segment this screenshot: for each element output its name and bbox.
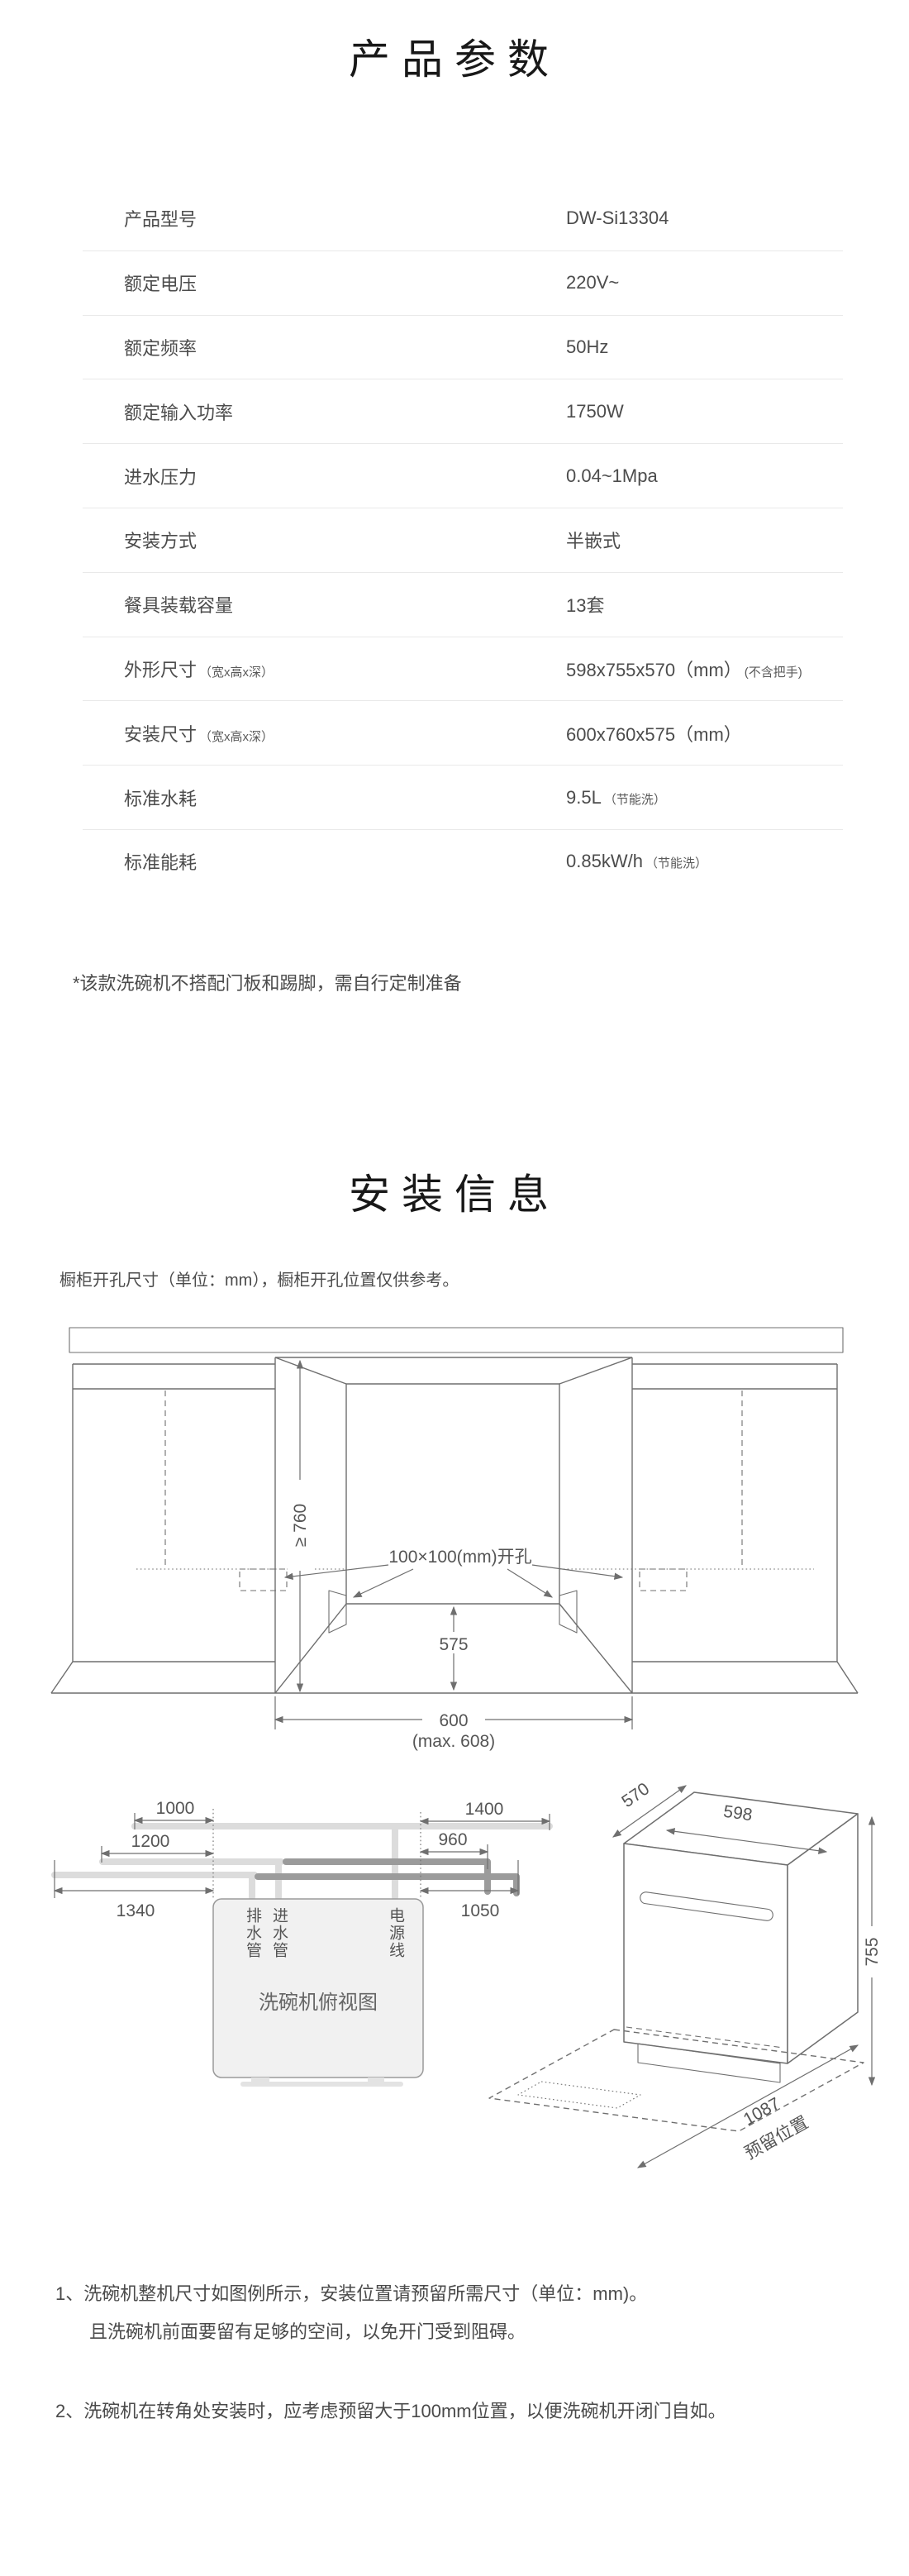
spec-label: 标准水耗: [124, 785, 197, 811]
topview-title: 洗碗机俯视图: [259, 1992, 378, 2014]
spec-value: 600x760x575（mm）: [566, 720, 742, 747]
hose-and-machine-diagram: 1000 1200 1340 1400 960 1050 洗碗机俯视图: [33, 1761, 884, 2224]
spec-row-energy-use: 标准能耗 0.85kW/h（节能洗）: [83, 830, 843, 894]
label-power-cord: 电源线: [385, 1907, 405, 1959]
product-detail-page: { "specs": { "title": "产品参数", "rows": [ …: [0, 0, 909, 2576]
spec-row-outer-size: 外形尺寸（宽x高x深） 598x755x570（mm）(不含把手): [83, 637, 843, 702]
dim-height-label: ≥ 760: [291, 1504, 310, 1547]
spec-label: 额定电压: [124, 270, 197, 296]
dim-height: ≥ 760: [288, 1361, 312, 1691]
dim-drain-left: 1340: [117, 1901, 155, 1920]
spec-label: 额定输入功率: [124, 398, 233, 425]
spec-value: 半嵌式: [566, 527, 621, 553]
spec-value: 598x755x570（mm）: [566, 656, 742, 682]
spec-label: 餐具装载容量: [124, 591, 233, 618]
spec-label: 安装方式: [124, 527, 197, 553]
spec-value: 50Hz: [566, 336, 608, 358]
spec-value-note: （节能洗）: [645, 854, 707, 871]
dim-width-max-label: (max. 608): [412, 1732, 495, 1751]
hoses: [55, 1826, 550, 1897]
edge-projection-lines: [213, 1809, 421, 1899]
dim-power-right: 1400: [465, 1800, 504, 1819]
spec-label: 产品型号: [124, 205, 197, 231]
spec-value-note: （节能洗）: [604, 790, 666, 808]
dim-inlet-left: 1200: [131, 1832, 170, 1851]
dim-depth-label: 575: [439, 1635, 468, 1654]
dim-drain-right: 1050: [461, 1901, 500, 1920]
spec-row-frequency: 额定频率 50Hz: [83, 316, 843, 380]
spec-row-voltage: 额定电压 220V~: [83, 251, 843, 316]
spec-row-install-size: 安装尺寸（宽x高x深） 600x760x575（mm）: [83, 701, 843, 766]
dim-inlet-right: 960: [438, 1830, 467, 1849]
label-drain-hose: 排水管: [242, 1907, 262, 1959]
spec-row-capacity: 餐具装载容量 13套: [83, 573, 843, 637]
spec-value: DW-Si13304: [566, 208, 669, 229]
label-inlet-hose: 进水管: [269, 1907, 288, 1959]
dim-hole: 100×100(mm)开孔: [285, 1548, 622, 1597]
dim-clearance: 1087: [740, 2094, 783, 2130]
spec-label: 额定频率: [124, 334, 197, 360]
dim-machine-width: 598: [722, 1802, 754, 1825]
spec-value: 1750W: [566, 401, 624, 422]
specs-title: 产品参数: [0, 26, 909, 86]
note-1-num: 1、: [55, 2283, 83, 2304]
dim-depth: 575: [432, 1607, 475, 1690]
spec-row-water-use: 标准水耗 9.5L（节能洗）: [83, 766, 843, 830]
spec-label: 进水压力: [124, 463, 197, 489]
dim-hole-label: 100×100(mm)开孔: [388, 1548, 531, 1567]
right-cabinet: [559, 1364, 858, 1693]
dim-machine-height: 755: [863, 1937, 882, 1966]
spec-value: 0.85kW/h: [566, 851, 643, 872]
spec-label: 安装尺寸: [124, 720, 197, 747]
spec-value: 9.5L: [566, 787, 602, 809]
dishwasher-isometric: [624, 1792, 858, 2082]
install-notes: 1、洗碗机整机尺寸如图例所示，安装位置请预留所需尺寸（单位：mm)。 且洗碗机前…: [55, 2275, 873, 2431]
spec-row-model: 产品型号 DW-Si13304: [83, 187, 843, 251]
dim-power-left: 1000: [156, 1799, 195, 1818]
countertop: [69, 1328, 843, 1352]
note-2-line-1: 2、洗碗机在转角处安装时，应考虑预留大于100mm位置，以便洗碗机开闭门自如。: [55, 2392, 873, 2431]
note-2-num: 2、: [55, 2401, 83, 2421]
install-title: 安装信息: [0, 1162, 909, 1221]
note-1-line-1: 1、洗碗机整机尺寸如图例所示，安装位置请预留所需尺寸（单位：mm)。: [55, 2275, 873, 2313]
spec-row-install-type: 安装方式 半嵌式: [83, 508, 843, 573]
spec-footnote: *该款洗碗机不搭配门板和踢脚，需自行定制准备: [73, 969, 462, 995]
spec-row-power: 额定输入功率 1750W: [83, 379, 843, 444]
install-subtitle: 橱柜开孔尺寸（单位：mm），橱柜开孔位置仅供参考。: [59, 1267, 459, 1290]
spec-label-note: （宽x高x深）: [199, 727, 274, 745]
spec-label-note: （宽x高x深）: [199, 663, 274, 680]
note-1-line-2: 且洗碗机前面要留有足够的空间，以免开门受到阻碍。: [55, 2313, 873, 2351]
dim-machine-depth: 570: [618, 1779, 653, 1811]
cabinet-opening-diagram: ≥ 760 100×100(mm)开孔 575 600 (max. 608): [45, 1319, 864, 1753]
spec-value-note: (不含把手): [745, 663, 802, 680]
spec-value: 0.04~1Mpa: [566, 465, 658, 487]
dim-width: 600 (max. 608): [275, 1696, 632, 1751]
spec-label: 外形尺寸: [124, 656, 197, 682]
spec-value: 220V~: [566, 272, 619, 293]
spec-row-water-pressure: 进水压力 0.04~1Mpa: [83, 444, 843, 508]
spec-table: 产品型号 DW-Si13304 额定电压 220V~ 额定频率 50Hz 额定输…: [83, 187, 843, 894]
dim-width-label: 600: [439, 1711, 468, 1730]
spec-label: 标准能耗: [124, 848, 197, 875]
spec-value: 13套: [566, 591, 604, 618]
